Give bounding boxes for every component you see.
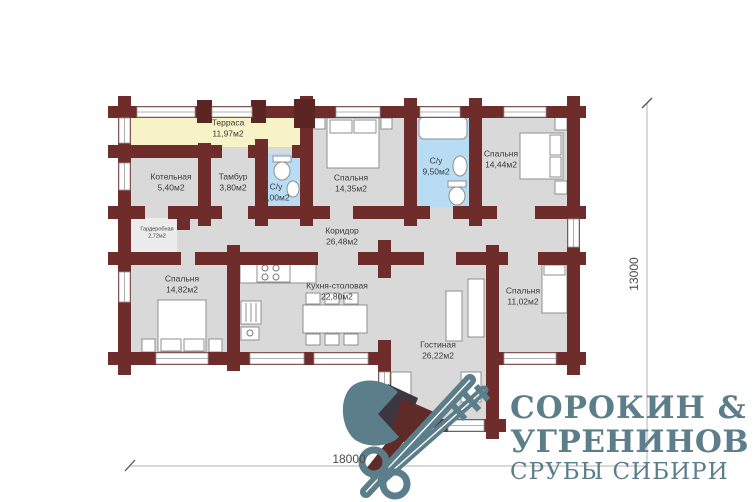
room-label-bedroom-left: Спальня 14,82м2 [165, 274, 199, 295]
room-label-living: Гостиная 26,22м2 [420, 340, 456, 361]
room-label-tambour: Тамбур 3,80м2 [219, 172, 248, 193]
room-label-terrace: Терраса 11,97м2 [212, 118, 245, 139]
floor-plan-page: Терраса 11,97м2 Котельная 5,40м2 Тамбур … [0, 0, 753, 502]
room-label-bedroom-top-right: Спальня 14,44м2 [484, 149, 518, 170]
room-label-corridor: Коридор 26,48м2 [325, 226, 359, 247]
room-label-wardrobe: Гардеробная 2,72м2 [140, 227, 173, 240]
room-label-bathroom: С/у 9,50м2 [422, 156, 449, 177]
dimension-width-label: 18000 [332, 452, 365, 466]
dimension-height-label: 13000 [627, 257, 641, 290]
logo-name-line2: УГРЕНИНОВ [510, 425, 750, 459]
room-label-bedroom-top-left: Спальня 14,35м2 [334, 173, 368, 194]
room-label-wc-small: С/у 3,00м2 [262, 182, 289, 203]
room-label-boiler: Котельная 5,40м2 [150, 172, 191, 193]
logo-axe-key-icon [343, 380, 488, 496]
room-label-kitchen: Кухня-столовая 22,80м2 [306, 281, 368, 302]
logo-name-line1: СОРОКИН & [510, 391, 750, 425]
room-label-bedroom-right: Спальня 11,02м2 [506, 286, 540, 307]
company-logo-text: СОРОКИН & УГРЕНИНОВ СРУБЫ СИБИРИ [510, 391, 750, 486]
logo-tagline: СРУБЫ СИБИРИ [510, 459, 750, 486]
